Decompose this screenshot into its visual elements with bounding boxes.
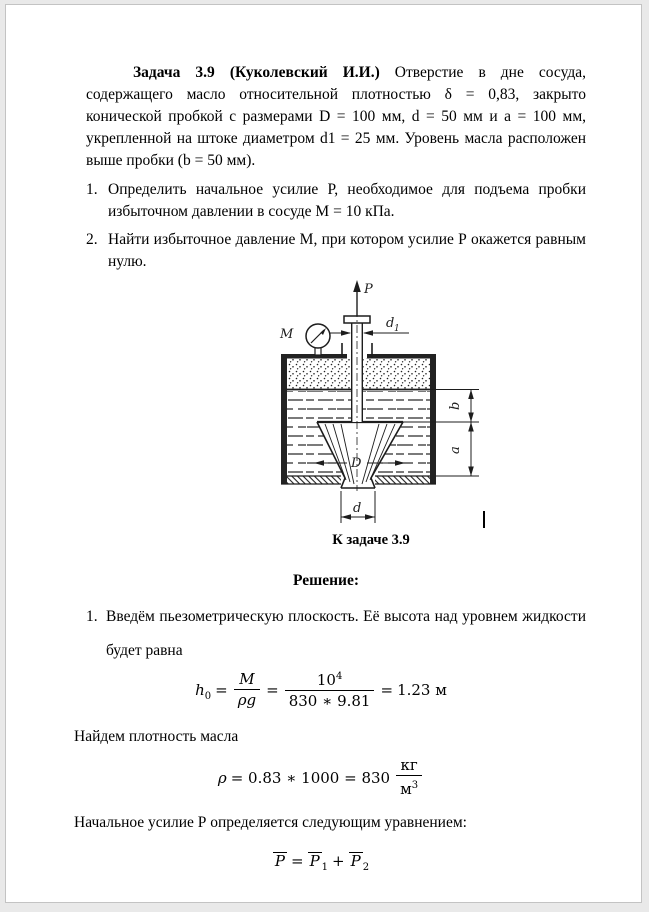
gauge-label: M [279,327,294,342]
equals-sign: = [287,852,308,870]
task-item-1: 1. Определить начальное усилие Р, необхо… [86,179,586,223]
numerator: 104 [285,668,375,691]
force-label: P [363,282,373,297]
unit-denominator: м3 [396,776,422,798]
unit-exponent: 3 [412,780,418,791]
vessel-diagram: P d 1 M [246,279,496,529]
density-intro-text: Найдем плотность масла [74,726,586,748]
denominator: 830 ∗ 9.81 [285,691,375,710]
unit-fraction: кгм3 [396,756,422,798]
P-bar: P [273,852,287,870]
P2-sub: 2 [363,862,369,873]
formula-force-vector: P=P1+P2 [86,850,556,873]
fraction-numeric: 104830 ∗ 9.81 [285,668,375,710]
cone-height-a-label: a [448,446,463,454]
cone-bottom-diameter-dimension: d [341,491,375,523]
task-text: Найти избыточное давление М, при котором… [108,229,586,273]
step-number: 1. [86,600,106,668]
denominator: ρg [234,690,260,709]
problem-title: Задача 3.9 (Куколевский И.И.) [133,64,380,81]
document-page: Задача 3.9 (Куколевский И.И.) Отверстие … [5,4,642,903]
force-intro-text: Начальное усилие Р определяется следующи… [74,812,586,834]
P1-bar: P [308,852,322,870]
P2-bar: P [349,852,363,870]
task-number: 1. [86,179,108,223]
task-item-2: 2. Найти избыточное давление М, при кото… [86,229,586,273]
unit-base: м [400,780,412,798]
result-value: 1.23 м [397,681,447,699]
cone-top-diameter-label: D [350,456,362,471]
step-text: Введём пьезометрическую плоскость. Её вы… [106,600,586,668]
density-expression: = 0.83 ∗ 1000 = 830 [227,769,394,787]
h0-var: h [195,681,205,699]
figure: P d 1 M [86,279,586,549]
equals-sign: = [262,681,283,699]
equals-sign: = [211,681,232,699]
solution-heading: Решение: [86,570,566,592]
equals-sign: = [376,681,397,699]
solution-step-1: 1. Введём пьезометрическую плоскость. Её… [86,600,586,668]
cone-bottom-diameter-label: d [353,501,361,516]
depth-b-label: b [448,402,463,410]
rho-var: ρ [218,769,227,787]
formula-piezometric-height: h0=Mρg=104830 ∗ 9.81=1.23 м [86,670,556,712]
force-arrow: P [353,280,373,316]
plus-sign: + [328,852,349,870]
unit-numerator: кг [396,756,422,776]
power-exponent: 4 [336,671,342,682]
task-text: Определить начальное усилие Р, необходим… [108,179,586,223]
pressure-gauge: M [279,324,330,355]
figure-caption: К задаче 3.9 [246,531,496,549]
task-number: 2. [86,229,108,273]
formula-density: ρ= 0.83 ∗ 1000 = 830кгм3 [86,758,556,800]
numerator: M [234,670,260,690]
document-viewer: { "problem": { "title_bold": "Задача 3.9… [0,0,649,912]
task-list: 1. Определить начальное усилие Р, необхо… [86,179,586,273]
page-content: Задача 3.9 (Куколевский И.И.) Отверстие … [6,62,641,873]
problem-statement: Задача 3.9 (Куколевский И.И.) Отверстие … [86,62,586,172]
fraction-M-rho-g: Mρg [234,670,260,709]
rod-diameter-sub: 1 [394,324,400,334]
text-cursor [483,511,485,528]
power-base: 10 [317,671,336,689]
